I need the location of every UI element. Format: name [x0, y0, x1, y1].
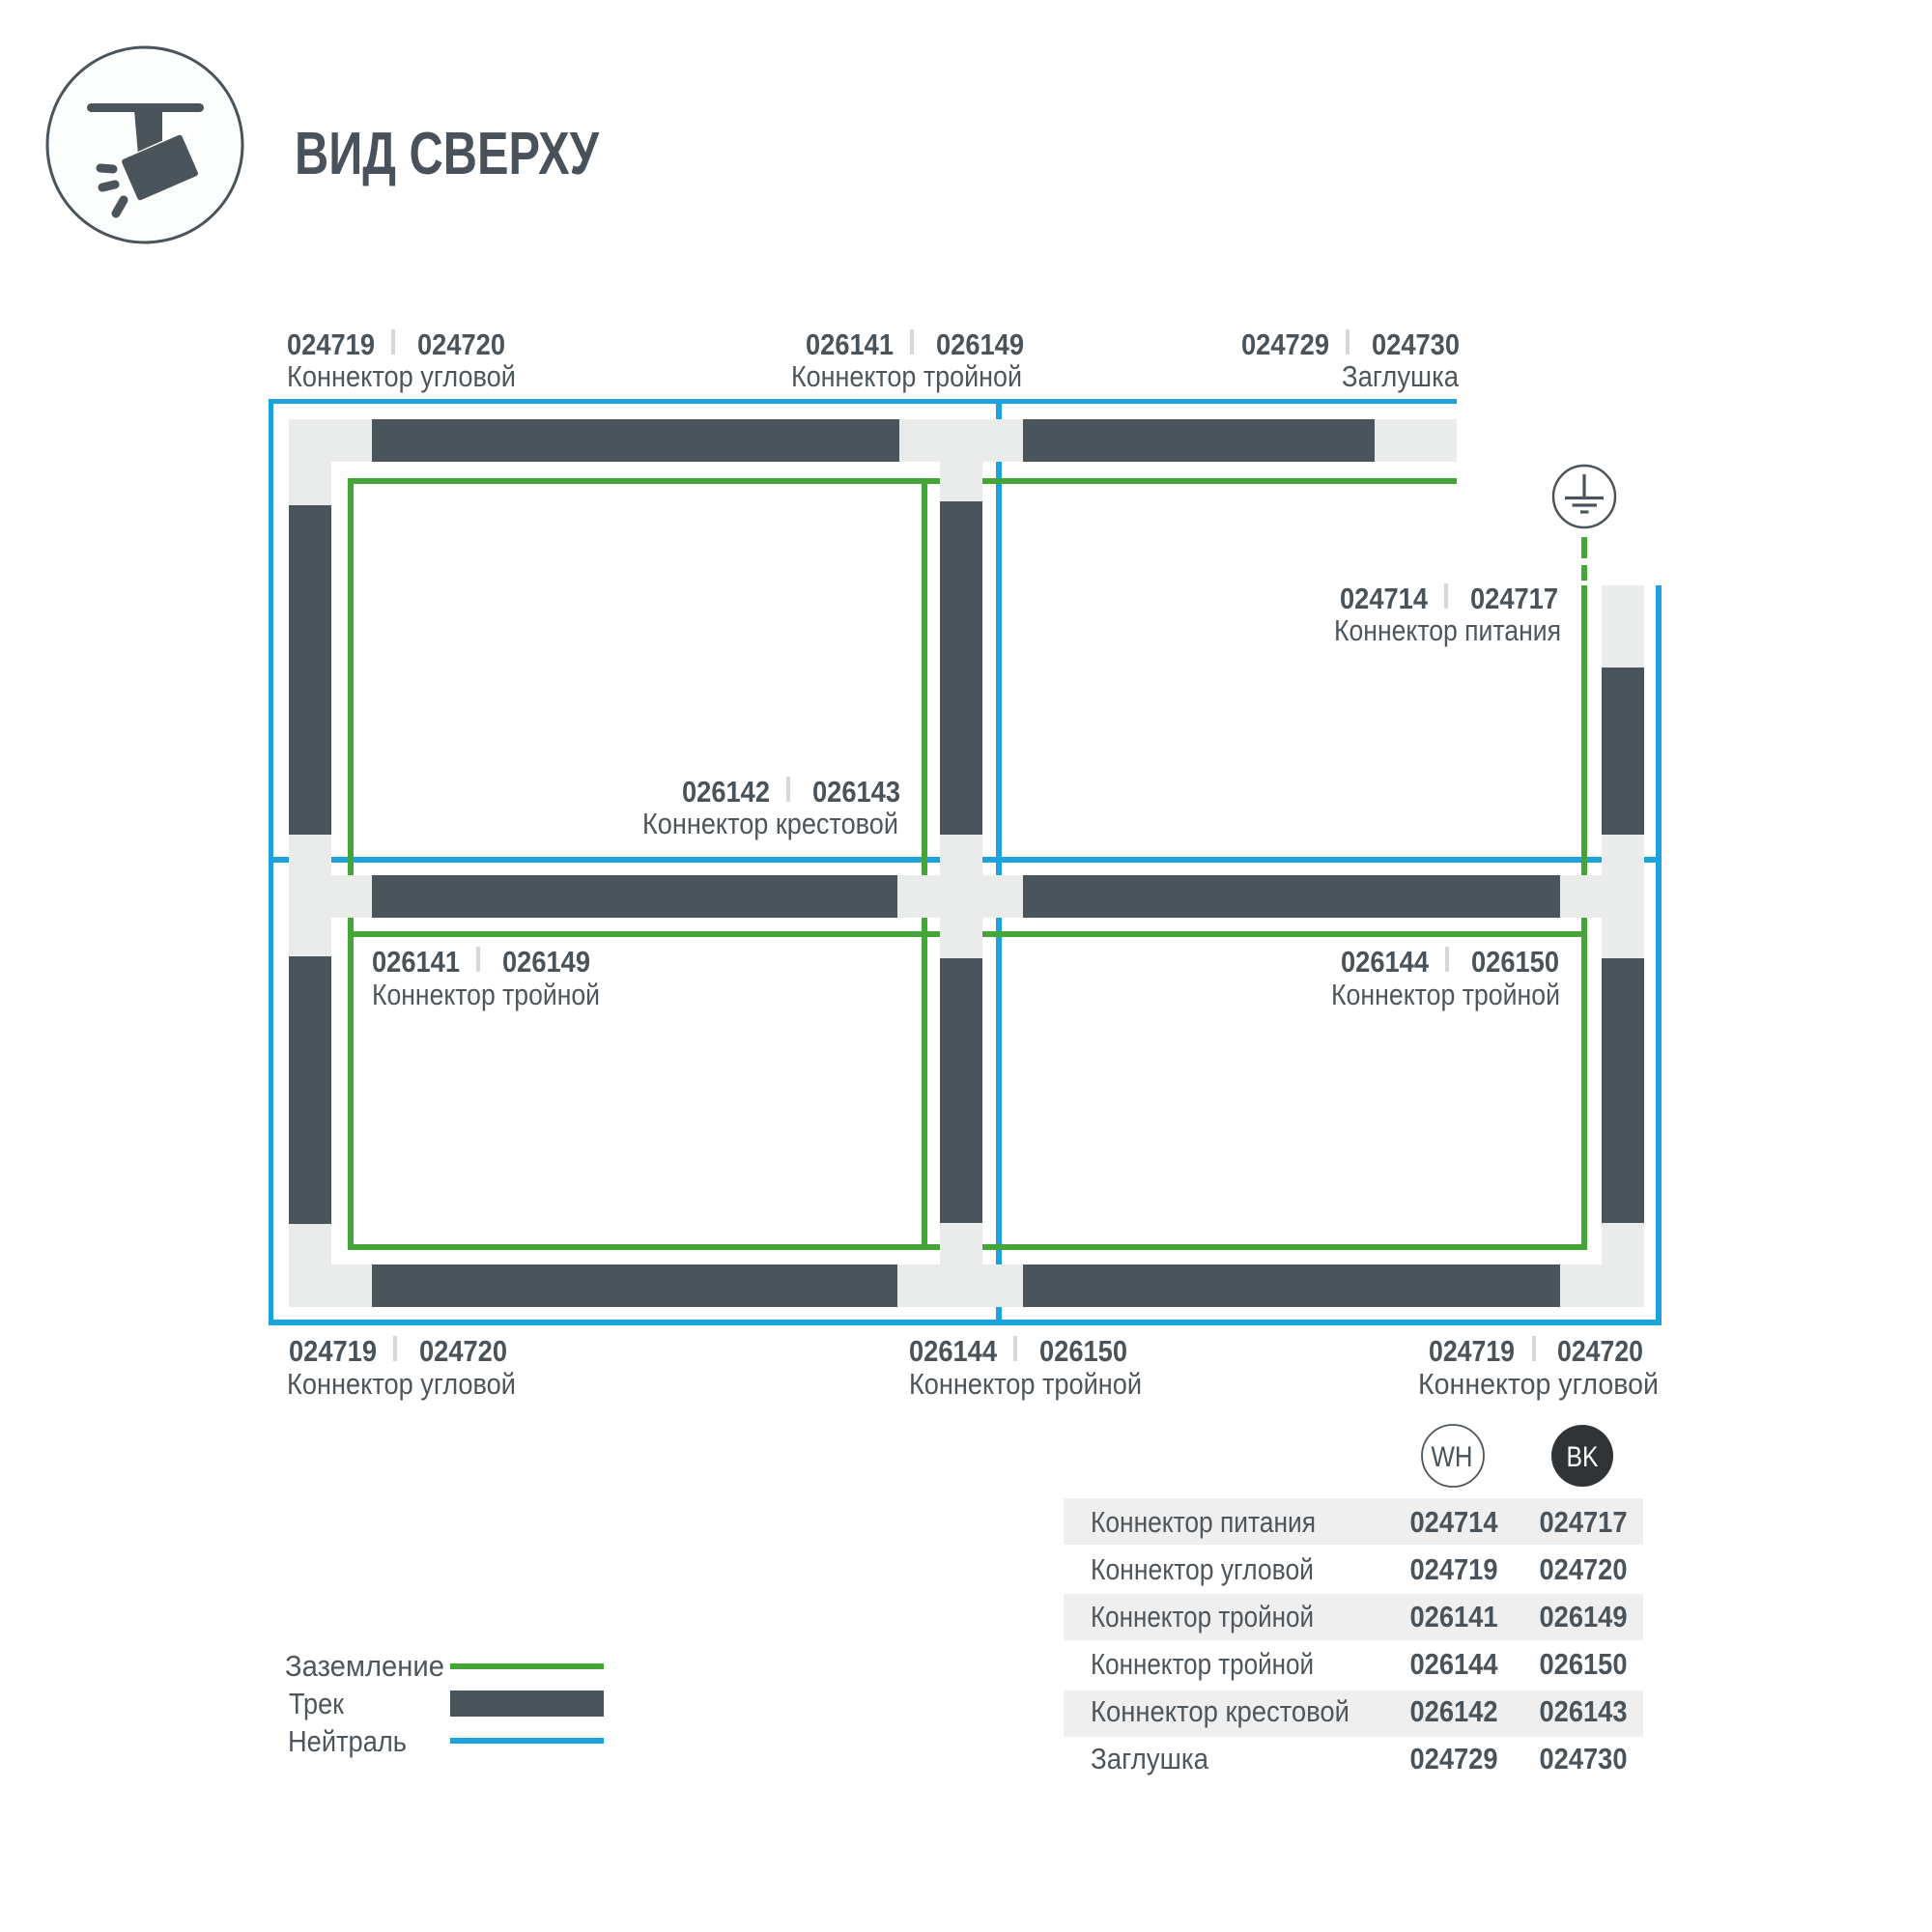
svg-text:024730: 024730	[1372, 327, 1460, 361]
svg-text:024720: 024720	[419, 1334, 507, 1368]
svg-text:Коннектор питания: Коннектор питания	[1334, 613, 1561, 647]
svg-text:026141: 026141	[1410, 1600, 1498, 1634]
svg-text:WH: WH	[1432, 1441, 1473, 1473]
svg-text:Коннектор крестовой: Коннектор крестовой	[642, 807, 898, 840]
svg-text:026149: 026149	[936, 327, 1024, 361]
svg-text:Коннектор угловой: Коннектор угловой	[1418, 1367, 1659, 1401]
svg-text:024729: 024729	[1241, 327, 1329, 361]
svg-text:Коннектор тройной: Коннектор тройной	[1091, 1647, 1314, 1681]
svg-text:026143: 026143	[1540, 1694, 1628, 1728]
svg-text:ВИД СВЕРХУ: ВИД СВЕРХУ	[295, 121, 600, 187]
svg-text:024730: 024730	[1540, 1742, 1628, 1776]
svg-text:026144: 026144	[1410, 1647, 1499, 1681]
svg-text:024714: 024714	[1410, 1505, 1499, 1539]
svg-text:026150: 026150	[1039, 1334, 1127, 1368]
svg-text:Коннектор крестовой: Коннектор крестовой	[1091, 1694, 1350, 1728]
svg-text:024719: 024719	[1410, 1552, 1498, 1586]
svg-text:024720: 024720	[417, 327, 505, 361]
svg-text:024719: 024719	[289, 1334, 377, 1368]
svg-text:026141: 026141	[372, 945, 460, 979]
svg-text:Трек: Трек	[289, 1687, 344, 1720]
svg-text:026144: 026144	[1341, 945, 1430, 979]
svg-text:024719: 024719	[287, 327, 375, 361]
svg-text:024717: 024717	[1470, 582, 1558, 615]
svg-text:024719: 024719	[1429, 1334, 1515, 1368]
svg-text:Коннектор угловой: Коннектор угловой	[287, 359, 516, 393]
svg-text:026144: 026144	[909, 1334, 998, 1368]
svg-text:Коннектор питания: Коннектор питания	[1091, 1505, 1316, 1539]
svg-text:Коннектор тройной: Коннектор тройной	[1331, 978, 1560, 1011]
svg-text:BK: BK	[1567, 1441, 1599, 1473]
svg-text:Коннектор тройной: Коннектор тройной	[791, 359, 1022, 393]
svg-text:024714: 024714	[1340, 582, 1429, 615]
svg-text:026143: 026143	[812, 775, 900, 809]
svg-text:Заземление: Заземление	[285, 1649, 444, 1683]
svg-text:026142: 026142	[1410, 1694, 1498, 1728]
svg-text:026150: 026150	[1471, 945, 1559, 979]
svg-text:024720: 024720	[1540, 1552, 1628, 1586]
svg-text:Коннектор угловой: Коннектор угловой	[287, 1367, 516, 1401]
svg-text:026150: 026150	[1540, 1647, 1628, 1681]
svg-text:Заглушка: Заглушка	[1342, 359, 1460, 393]
svg-text:024720: 024720	[1557, 1334, 1643, 1368]
svg-text:Заглушка: Заглушка	[1091, 1742, 1209, 1776]
svg-text:026149: 026149	[502, 945, 590, 979]
svg-text:024717: 024717	[1540, 1505, 1628, 1539]
svg-text:Коннектор тройной: Коннектор тройной	[909, 1367, 1142, 1401]
svg-text:026141: 026141	[806, 327, 894, 361]
svg-text:Коннектор угловой: Коннектор угловой	[1091, 1552, 1314, 1586]
svg-text:026149: 026149	[1540, 1600, 1628, 1634]
svg-text:Коннектор тройной: Коннектор тройной	[372, 978, 600, 1011]
svg-text:Нейтраль: Нейтраль	[288, 1724, 407, 1758]
svg-text:024729: 024729	[1410, 1742, 1498, 1776]
svg-text:026142: 026142	[682, 775, 770, 809]
svg-text:Коннектор тройной: Коннектор тройной	[1091, 1600, 1314, 1634]
